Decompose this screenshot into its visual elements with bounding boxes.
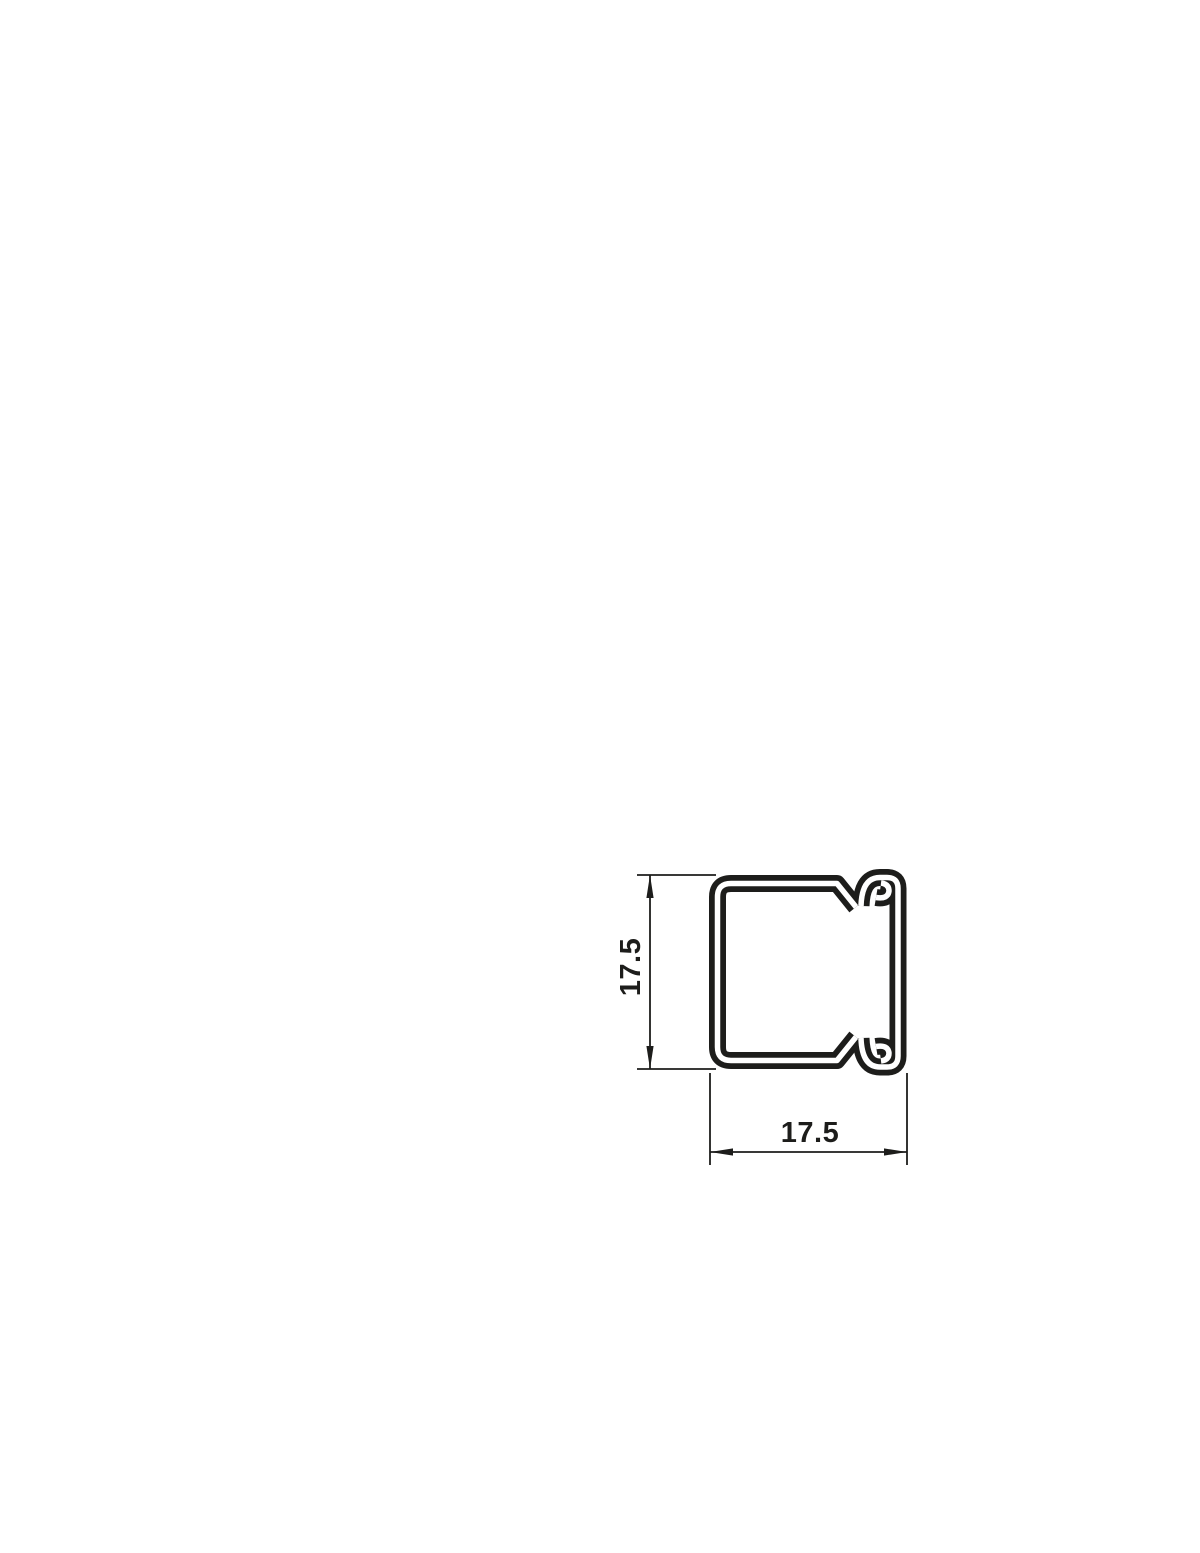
width-dimension-arrow-left [710,1148,733,1155]
profile-body-outline [718,884,857,1061]
height-dimension-label: 17.5 [615,938,647,996]
height-dimension-arrow-up [646,875,653,898]
height-dimension-arrow-down [646,1046,653,1069]
profile-outline-white [718,878,899,1068]
trunking-cross-section-drawing: 17.5 17.5 [0,0,1200,1553]
height-dimension: 17.5 [615,875,716,1069]
width-dimension-arrow-right [884,1148,907,1155]
width-dimension: 17.5 [710,1073,907,1165]
profile-outline-black [718,878,899,1068]
profile-body-inner-line [718,884,857,1061]
drawing-page: 17.5 17.5 [0,0,1200,1553]
width-dimension-label: 17.5 [781,1117,839,1149]
